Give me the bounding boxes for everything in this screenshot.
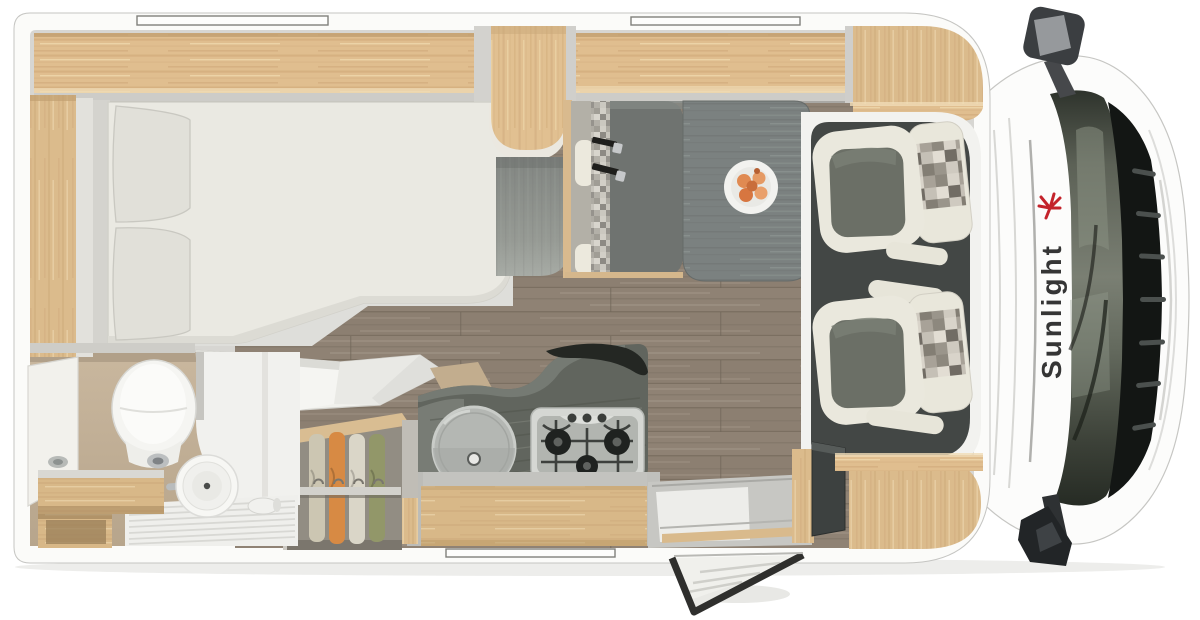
svg-text:Sunlight: Sunlight	[1036, 243, 1067, 379]
